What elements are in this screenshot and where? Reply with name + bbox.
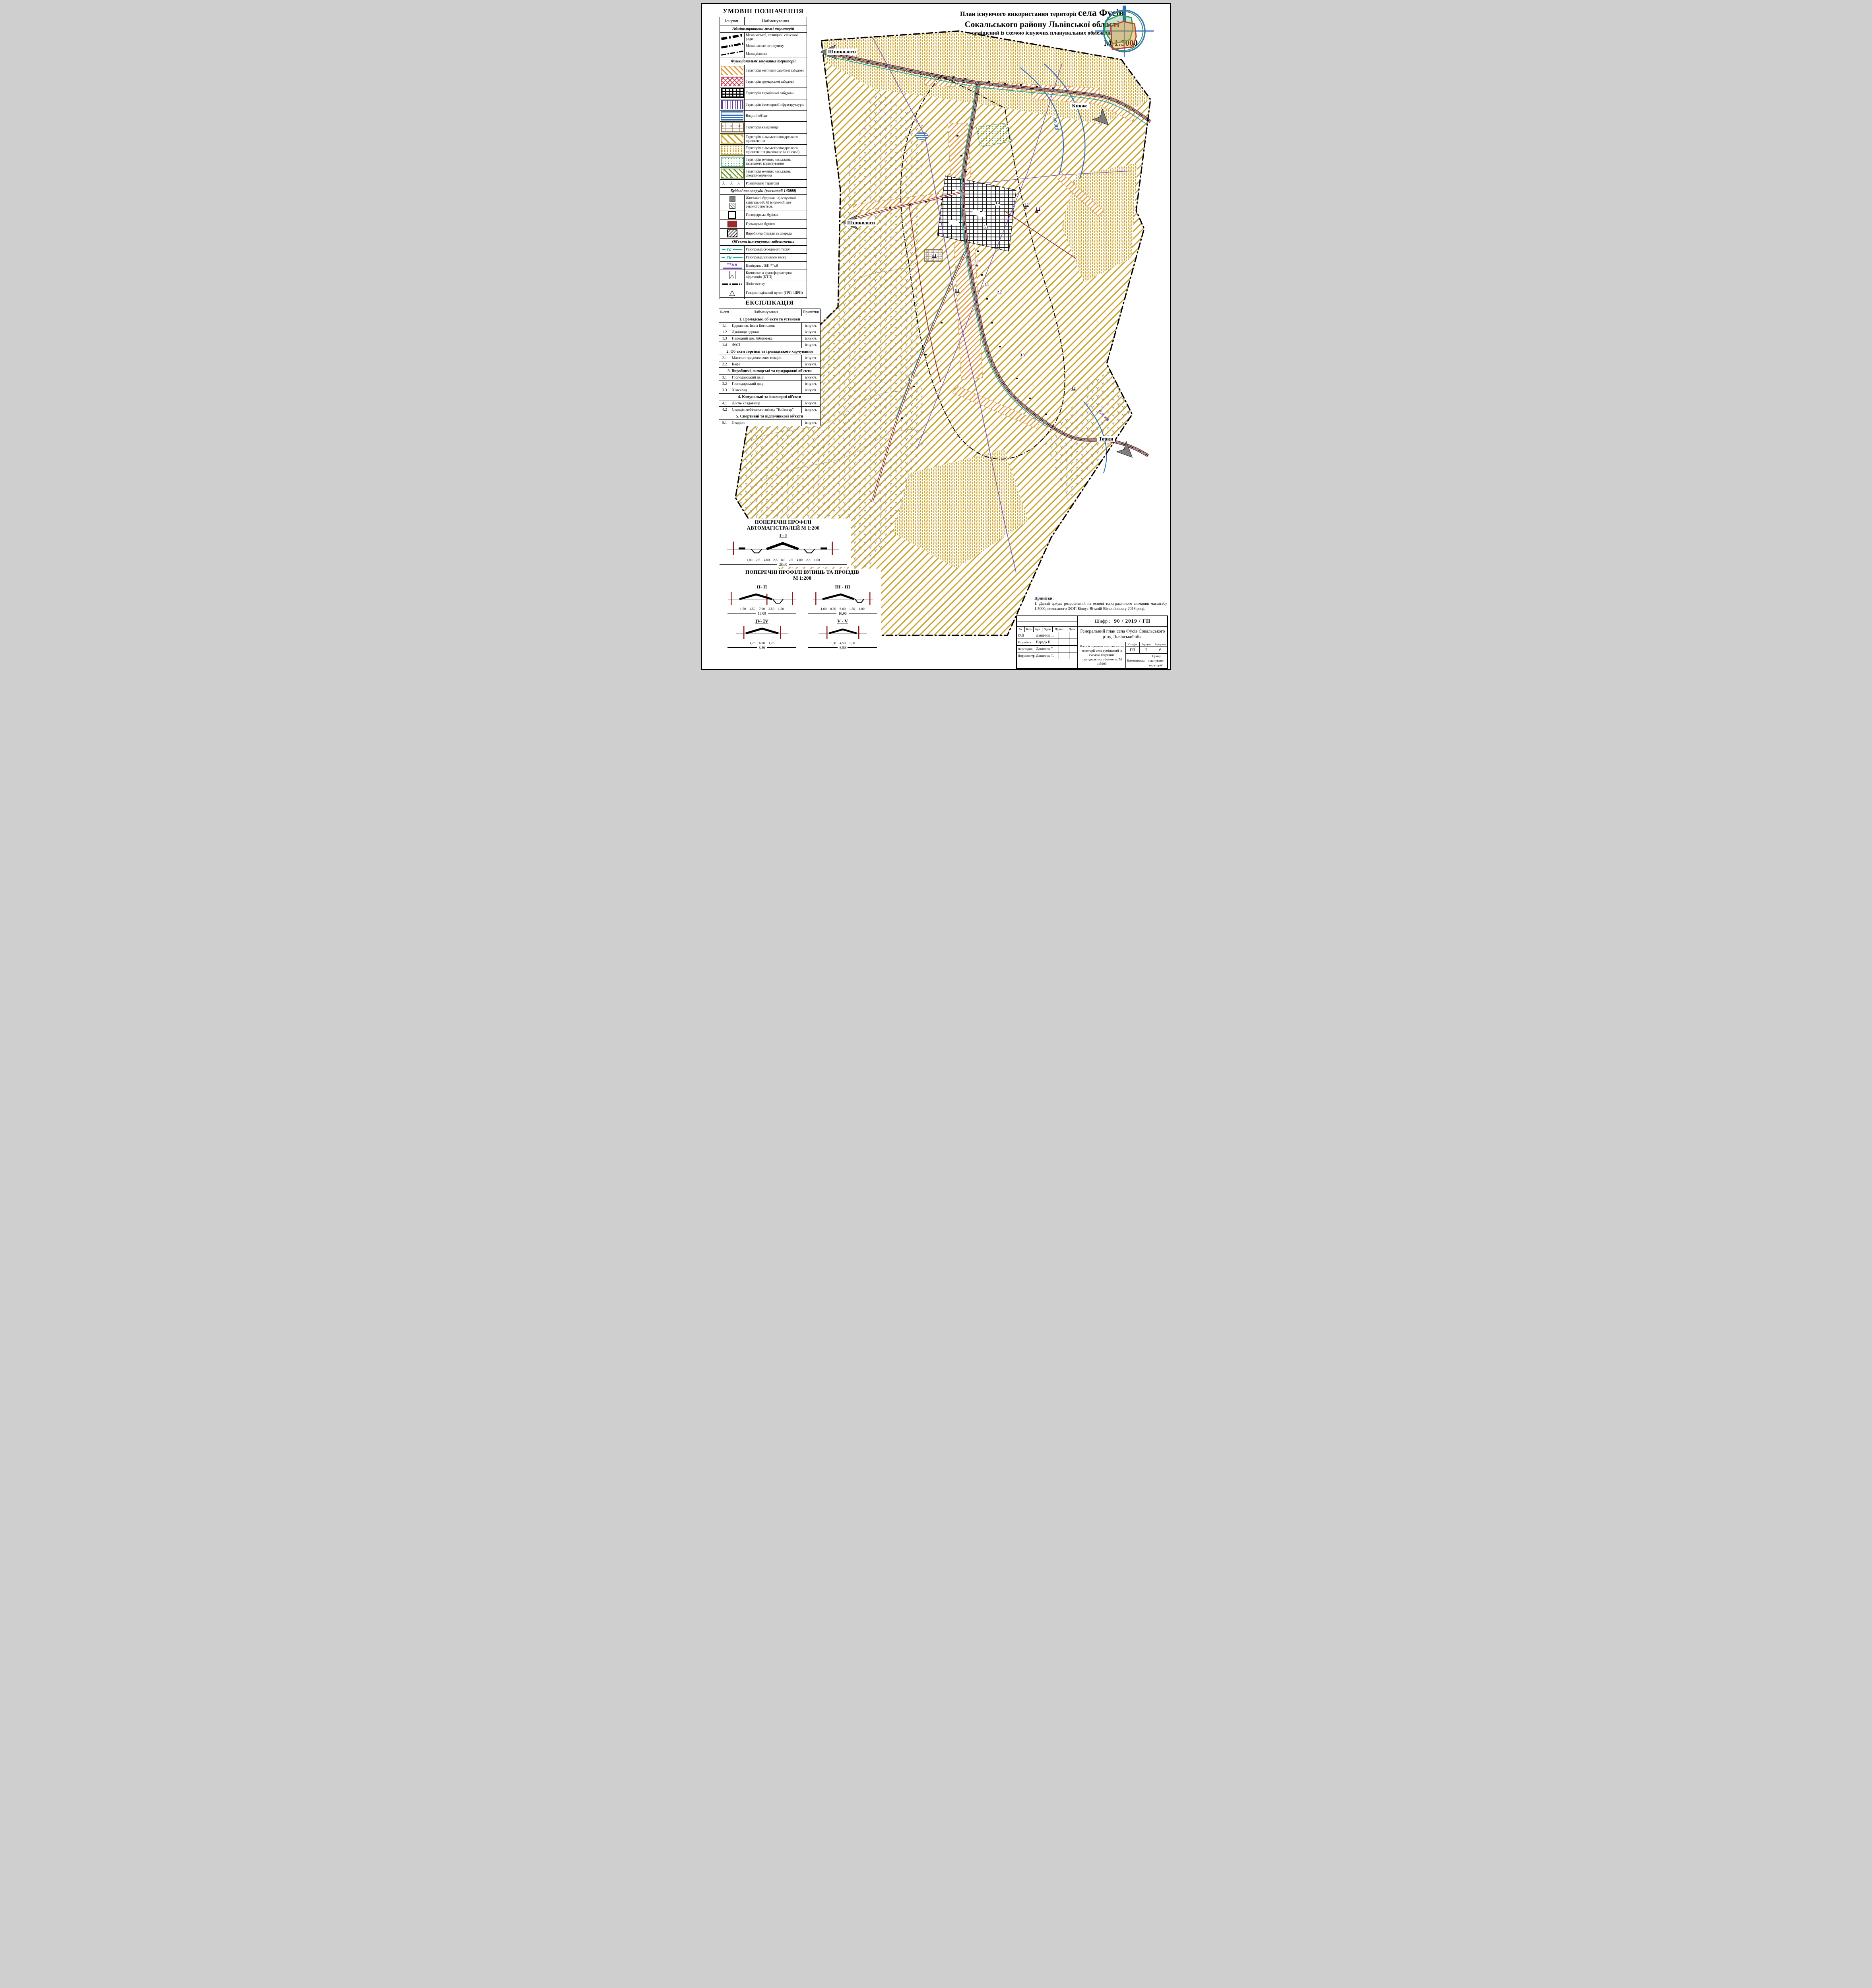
legend-row: Територія сільськогосподарського признач… <box>720 133 807 144</box>
explication-row-num: 5.1 <box>719 420 730 426</box>
legend-symbol <box>721 169 744 179</box>
profile-II-II: II- II 1,502,507,002,501,50 15,00 <box>724 583 799 615</box>
legend-symbol <box>721 100 743 109</box>
signature-date <box>1069 632 1077 639</box>
signature-date <box>1069 646 1077 652</box>
dimension-value: 4,00 <box>797 558 803 562</box>
legend-section-title: Адміністративні межі територій <box>721 27 806 31</box>
signature-rows: ГАП Данилюк Т. Розробив Парада Н. Пере <box>1017 632 1077 659</box>
legend-symbol-cell <box>720 270 745 280</box>
dimension-value: 6,00 <box>759 641 765 645</box>
legend-item-label: Повітряна ЛЕП **кВ <box>745 263 807 268</box>
legend-symbol: **кв <box>723 262 742 269</box>
cipher-row: Шифр : 90 / 2019 / ГП <box>1078 616 1167 627</box>
explication-row-note: існуюч. <box>802 356 820 360</box>
explication-row-note: існуюч. <box>802 382 820 386</box>
legend-symbol <box>721 88 744 98</box>
legend-symbol-cell <box>720 220 745 228</box>
explication-row: 2.1 Магазин продовольчих товарів існуюч. <box>719 355 820 361</box>
street-profiles-panel: ПОПЕРЕЧНІ ПРОФІЛІ ВУЛИЦЬ ТА ПРОЇЗДІВМ 1:… <box>724 569 881 650</box>
stage-values: ГП 2 6 <box>1126 647 1167 654</box>
dimension-value: 1,00 <box>821 607 826 611</box>
explication-row: 5. Спортивні та відпочинкові об'єкти <box>719 413 820 419</box>
explication-row: 1.2 Дзвіниця церкви існуюч. <box>719 329 820 335</box>
legend-symbol-cell: гн <box>720 254 745 261</box>
legend-symbol <box>721 134 743 144</box>
explication-row-num: 1.3 <box>719 336 730 342</box>
explication-row-name: Господарський двір <box>730 375 802 381</box>
explication-row-name: Господарський двір <box>730 381 802 387</box>
signature-date <box>1069 639 1077 645</box>
legend-item-label: Територія сільськогосподарського признач… <box>745 146 807 155</box>
signature-row: Перевірив Данилюк Т. <box>1017 646 1077 652</box>
legend-col-name: Найменування <box>745 17 807 25</box>
explication-row-note: існуюч. <box>802 421 820 425</box>
legend-item-label: Лінія зв'язку <box>745 282 807 286</box>
explication-row-num: 1.2 <box>719 329 730 335</box>
legend-symbol-cell <box>720 280 745 288</box>
explication-row: 5.1 Стадіон існуюч. <box>719 419 820 426</box>
signature-header: Зм.К-ть Арк.№док ПідписДата <box>1017 627 1077 632</box>
street-profiles-title: ПОПЕРЕЧНІ ПРОФІЛІ ВУЛИЦЬ ТА ПРОЇЗДІВМ 1:… <box>724 569 880 581</box>
legend-header: Існуюч. Найменування <box>720 17 807 25</box>
legend-symbol <box>722 196 743 209</box>
signature-role: Норм.контр. <box>1017 652 1035 659</box>
title-block: Зм.К-ть Арк.№док ПідписДата ГАП Данилюк … <box>1016 615 1168 669</box>
explication-row: 4. Комунальні та інженерні об'єкти <box>719 393 820 400</box>
signature-name: Парада Н. <box>1035 639 1059 645</box>
profile-name: IV- IV <box>724 618 799 624</box>
company-logo <box>1095 6 1154 57</box>
explication-row-note: існуюч. <box>802 388 820 392</box>
legend-item-label: Господарська будівля <box>745 212 807 217</box>
signature-name: Данилюк Т. <box>1035 652 1059 659</box>
dimension-value: 1,25 <box>768 641 774 645</box>
profile-name: II- II <box>724 584 799 590</box>
legend-row: Водний об'єкт Водний об'єкт <box>720 110 807 121</box>
legend-symbol <box>721 146 743 155</box>
cipher-label: Шифр : <box>1095 618 1110 624</box>
legend-item-label: Розпайовані території <box>745 181 807 186</box>
legend-row: Територія зелених насаджень загального к… <box>720 155 807 167</box>
legend-symbol-cell <box>720 210 745 219</box>
title-block-info: Шифр : 90 / 2019 / ГП Генеральний план с… <box>1078 616 1167 668</box>
explication-row: 3. Виробничі, складські та придорожні об… <box>719 367 820 374</box>
signature-role: ГАП <box>1017 632 1035 639</box>
legend-item-label: Межа населеного пункту <box>745 43 807 48</box>
explication-row-name: Магазин продовольчих товарів <box>730 355 802 361</box>
profile-total: 8,50 <box>727 646 796 650</box>
signature-row: Розробив Парада Н. <box>1017 639 1077 646</box>
explication-header: №п/п Найменування Примітки <box>719 309 820 316</box>
explication-row-name: 1. Громадські об'єкти та установи <box>739 317 800 322</box>
legend-row: Житловий будинок : а) існуючий капітальн… <box>720 194 807 210</box>
signature-row: Норм.контр. Данилюк Т. <box>1017 652 1077 659</box>
explication-row-num: 4.2 <box>719 407 730 413</box>
dimension-value: 2,5 <box>773 558 778 562</box>
signature-sign <box>1059 632 1069 639</box>
dimension-value: 2,5 <box>789 558 793 562</box>
explication-row: 1.3 Народний дім, бібліотека існуюч. <box>719 335 820 342</box>
profile-name: V - V <box>805 618 880 624</box>
legend-row: Газопровід низького тиску гн Газопровід … <box>720 253 807 261</box>
explication-row-num: 3.1 <box>719 375 730 381</box>
explication-row-name: ФАП <box>730 342 802 348</box>
legend-item-label: Газопровід низького тиску <box>745 255 807 260</box>
profile-total: 6,50 <box>808 646 877 650</box>
legend-symbol-cell <box>720 111 745 121</box>
explication-row-num: 3.2 <box>719 381 730 387</box>
dimension-value: 1,50 <box>740 607 746 611</box>
legend-item-label: Межа ділянки <box>745 51 807 56</box>
explication-col-num: №п/п <box>719 309 730 316</box>
profile-drawing <box>731 625 793 641</box>
legend-col-existing: Існуюч. <box>720 17 745 25</box>
explication-row-note: існуюч. <box>802 376 820 380</box>
legend-title: УМОВНІ ПОЗНАЧЕННЯ <box>720 8 807 15</box>
explication-row-name: 3. Виробничі, складські та придорожні об… <box>727 369 811 373</box>
explication-row-name: Діюче кладовище <box>730 400 802 406</box>
legend-symbol-cell <box>720 288 745 297</box>
signature-role: Розробив <box>1017 639 1035 645</box>
highway-profiles-panel: ПОПЕРЕЧНІ ПРОФІЛІАВТОМАГІСТРАЛЕЙ М 1:200… <box>716 518 851 567</box>
legend-item-label: Межа міської, селищної, сільської ради <box>745 33 807 42</box>
legend-item-label: Водний об'єкт <box>745 113 807 118</box>
explication-row: 1.4 ФАП існуюч. <box>719 342 820 348</box>
dimension-value: 1,50 <box>778 607 784 611</box>
legend-row: Газопровід середнього тиску гс Газопрові… <box>720 245 807 253</box>
legend-symbol <box>729 289 735 297</box>
legend-section-title: Будівлі та споруди (масштаб 1:5000) <box>721 189 806 193</box>
cipher-value: 90 / 2019 / ГП <box>1114 618 1151 624</box>
explication-rows: 1. Громадські об'єкти та установи 1.1 Це… <box>719 316 820 426</box>
legend-symbol-cell <box>720 76 745 87</box>
legend-symbol <box>722 181 742 186</box>
dimension-value: 1,00 <box>859 607 865 611</box>
explication-title: ЕКСПЛІКАЦІЯ <box>719 300 821 307</box>
explication-row-name: Церква св. Івана Богослова <box>730 323 802 329</box>
dimension-value: 0,50 <box>830 607 836 611</box>
dimension-value: 1,00 <box>830 641 836 645</box>
legend-item-label: Територія житлової садибної забудови <box>745 68 807 73</box>
legend-symbol <box>721 77 743 86</box>
legend-row: Адміністративні межі територій Адміністр… <box>720 25 807 32</box>
legend-symbol <box>721 51 743 56</box>
explication-row-num: 3.3 <box>719 387 730 393</box>
signature-name: Данилюк Т. <box>1035 646 1059 652</box>
profile-total: 15,00 <box>727 612 796 615</box>
explication-row-note: існуюч. <box>802 402 820 406</box>
explication-row-name: 2. Об'єкти торгівлі та громадського харч… <box>726 349 813 354</box>
explication-row: 4.1 Діюче кладовище існуюч. <box>719 400 820 406</box>
explication-row-note: існуюч. <box>802 363 820 367</box>
legend-item-label: Територія виробничої забудови <box>745 91 807 95</box>
legend-symbol-cell <box>720 65 745 76</box>
legend-row: Господарська будівля Господарська будівл… <box>720 210 807 219</box>
profile-drawing <box>724 539 843 557</box>
explication-col-note: Примітки <box>802 309 820 316</box>
legend-row: Межа ділянки Межа ділянки <box>720 50 807 58</box>
profile-total: 10,00 <box>808 612 877 615</box>
explication-row: 1. Громадські об'єкти та установи <box>719 316 820 322</box>
legend-row: Об'єкти інженерного забезпечення Об'єкти… <box>720 238 807 245</box>
title-block-signatures: Зм.К-ть Арк.№док ПідписДата ГАП Данилюк … <box>1017 616 1078 668</box>
profile-name: I - I <box>716 533 850 539</box>
legend-row: Територія громадської забудови Територія… <box>720 76 807 87</box>
legend-symbol-cell: **кв <box>720 262 745 270</box>
legend-symbol <box>727 229 737 237</box>
legend-symbol-cell <box>720 156 745 167</box>
legend-row: Межа населеного пункту Межа населеного п… <box>720 42 807 50</box>
explication-row: 2.2 Кафе існуюч. <box>719 361 820 367</box>
dimension-value: 4,00 <box>764 558 770 562</box>
explication-row: 3.1 Господарський двір існуюч. <box>719 374 820 381</box>
explication-row-num: 1.4 <box>719 342 730 348</box>
legend-item-label: Комплектна трансформаторна підстанція (К… <box>745 270 807 280</box>
legend-row: Територія виробничої забудови Територія … <box>720 87 807 99</box>
sheets-total: 6 <box>1153 647 1167 654</box>
explication-row-name: Стадіон <box>730 420 802 426</box>
signature-sign <box>1059 646 1069 652</box>
explication-row-name: 4. Комунальні та інженерні об'єкти <box>738 395 801 399</box>
legend-item-label: Житловий будинок : а) існуючий капітальн… <box>745 196 807 209</box>
sheet-number: 2 <box>1140 647 1154 654</box>
plan-sheet: Шпиколоси Шпиколоси Княже Торки 1.1 1.2 … <box>701 3 1171 670</box>
legend-symbol-cell <box>720 145 745 155</box>
profile-V-V: V - V 1,004,501,00 6,50 <box>805 617 880 650</box>
legend-symbol-cell <box>720 87 745 99</box>
explication-row-num: 2.1 <box>719 355 730 361</box>
legend-row: Територія сільськогосподарського признач… <box>720 144 807 155</box>
explication-row: 1.1 Церква св. Івана Богослова існуюч. <box>719 322 820 329</box>
legend-symbol <box>721 111 743 120</box>
legend-symbol-cell <box>720 33 745 42</box>
legend-symbol: гн <box>722 255 742 260</box>
legend-symbol <box>727 221 737 227</box>
legend-row: Територія житлової садибної забудови Тер… <box>720 65 807 76</box>
legend-symbol-cell: гс <box>720 246 745 253</box>
dimension-value: 1,00 <box>814 558 820 562</box>
profile-total: 28,00 <box>720 563 847 567</box>
explication-row-num: 4.1 <box>719 400 730 406</box>
explication-row: 4.2 Станція мобільного зв'язку "Київстар… <box>719 406 820 413</box>
project-name: Генеральний план села Фусів Сокальського… <box>1078 627 1167 642</box>
profile-dimensions: 1,002,54,002,58,02,54,002,51,00 <box>716 558 850 562</box>
profile-IV-IV: IV- IV 1,256,001,25 8,50 <box>724 617 799 650</box>
explication-row-num: 2.2 <box>719 361 730 367</box>
stage-header: Стадія Аркуш Аркушів <box>1126 642 1167 647</box>
legend-row: Територія зелених насаджень спецпризначе… <box>720 167 807 179</box>
legend-symbol <box>721 122 744 132</box>
explication-row: 2. Об'єкти торгівлі та громадського харч… <box>719 348 820 355</box>
notes-title: Примітки : <box>1034 596 1167 601</box>
legend-item-label: Територія сільськогосподарського признач… <box>745 134 807 144</box>
legend-symbol-cell <box>720 99 745 110</box>
explication-row-name: Народний дім, бібліотека <box>730 336 802 342</box>
legend-row: Розпайовані території Розпайовані терито… <box>720 179 807 187</box>
dimension-value: 6,00 <box>840 607 846 611</box>
legend-symbol-cell <box>720 122 745 133</box>
dimension-value: 2,5 <box>756 558 760 562</box>
legend-symbol: гс <box>722 247 742 252</box>
signature-name: Данилюк Т. <box>1035 632 1059 639</box>
signature-date <box>1069 652 1077 659</box>
legend-symbol <box>728 211 736 219</box>
dimension-value: 2,50 <box>768 607 774 611</box>
legend-row: Лінія зв'язку Лінія зв'язку <box>720 280 807 288</box>
explication-row-name: Станція мобільного зв'язку "Київстар" <box>730 407 802 413</box>
legend-symbol <box>721 157 744 167</box>
legend-section-title: Функціональне зонування території <box>721 59 806 64</box>
profile-drawing <box>812 590 874 606</box>
explication-row-note: існуюч. <box>802 408 820 412</box>
legend-row: Функціональне зонування території Функці… <box>720 58 807 65</box>
dimension-value: 1,25 <box>749 641 755 645</box>
explication-row: 3.2 Господарський двір існуюч. <box>719 381 820 387</box>
legend-symbol-cell <box>720 229 745 238</box>
highway-profiles-title: ПОПЕРЕЧНІ ПРОФІЛІАВТОМАГІСТРАЛЕЙ М 1:200 <box>716 519 850 531</box>
signature-sign <box>1059 639 1069 645</box>
legend-row: Межа міської, селищної, сільської ради М… <box>720 32 807 42</box>
legend-section-title: Об'єкти інженерного забезпечення <box>721 240 806 244</box>
dimension-value: 2,5 <box>806 558 811 562</box>
explication-col-name: Найменування <box>730 309 802 316</box>
legend-symbol-cell <box>720 168 745 179</box>
dimension-value: 1,00 <box>747 558 753 562</box>
notes-block: Примітки : 1. Даний аркуш розроблений на… <box>1034 596 1167 612</box>
legend-item-label: Територія кладовища <box>745 125 807 130</box>
legend-row: Територія кладовища Територія кладовища <box>720 121 807 133</box>
legend-item-label: Територія інженерної інфраструктури <box>745 102 807 107</box>
profile-drawing <box>812 625 874 641</box>
profile-III-III: III - III 1,000,506,001,501,00 10,00 <box>805 583 880 615</box>
explication-row-name: Хімсклад <box>730 387 802 393</box>
legend-symbol <box>721 43 743 49</box>
legend-item-label: Територія громадської забудови <box>745 79 807 84</box>
legend-symbol-cell <box>720 42 745 50</box>
signature-row: ГАП Данилюк Т. <box>1017 632 1077 639</box>
profile-drawing <box>727 590 797 606</box>
explication-row-name: Кафе <box>730 361 802 367</box>
explication-row-note: існуюч. <box>802 343 820 347</box>
legend-symbol <box>721 34 743 40</box>
legend-symbol-cell <box>720 180 745 187</box>
explication-row: 3.3 Хімсклад існуюч. <box>719 387 820 393</box>
legend-item-label: Громадська будівля <box>745 221 807 226</box>
explication-row-name: Дзвіниця церкви <box>730 329 802 335</box>
legend-row: Повітряна ЛЕП **кВ **кв Повітряна ЛЕП **… <box>720 261 807 270</box>
profile-I-I: I - I 1,002,54,002,58,02,54,002,51,00 28… <box>716 533 850 567</box>
legend-item-label: Територія зелених насаджень спецпризначе… <box>745 169 807 178</box>
explication-row-num: 1.1 <box>719 323 730 329</box>
legend-row: Газорозподільний пункт (ГРП, ШРП) Газоро… <box>720 288 807 297</box>
legend-row: Громадська будівля Громадська будівля <box>720 219 807 228</box>
legend-symbol <box>722 283 742 285</box>
legend-row: Територія інженерної інфраструктури Тери… <box>720 99 807 110</box>
notes-text: 1. Даний аркуш розроблений на основі топ… <box>1034 602 1167 612</box>
dimension-value: 1,00 <box>849 641 855 645</box>
sheet-title: План існуючого використання території се… <box>1078 642 1126 668</box>
dimension-value: 4,50 <box>840 641 846 645</box>
profile-name: III - III <box>805 584 880 590</box>
dimension-value: 2,50 <box>749 607 755 611</box>
explication-row-name: 5. Спортивні та відпочинкові об'єкти <box>736 414 803 419</box>
explication-panel: ЕКСПЛІКАЦІЯ №п/п Найменування Примітки 1… <box>719 299 821 426</box>
legend-symbol-cell <box>720 134 745 144</box>
executor: Виконавець: "Центр плануваня території" <box>1126 654 1167 668</box>
legend-row: Виробнича будівля та споруда Виробнича б… <box>720 228 807 238</box>
legend-item-label: Територія зелених насаджень загального к… <box>745 157 807 166</box>
explication-row-note: існуюч. <box>802 337 820 341</box>
legend-symbol <box>729 271 735 279</box>
dimension-value: 1,50 <box>849 607 855 611</box>
legend-item-label: Газорозподільний пункт (ГРП, ШРП) <box>745 290 807 295</box>
signature-role: Перевірив <box>1017 646 1035 652</box>
legend-row: Комплектна трансформаторна підстанція (К… <box>720 270 807 280</box>
stage-value: ГП <box>1126 647 1140 654</box>
explication-row-note: існуюч. <box>802 330 820 334</box>
legend-symbol-cell <box>720 195 745 210</box>
signature-sign <box>1059 652 1069 659</box>
legend-row: Будівлі та споруди (масштаб 1:5000) Буді… <box>720 187 807 194</box>
dimension-value: 8,0 <box>781 558 786 562</box>
legend-item-label: Виробнича будівля та споруда <box>745 231 807 236</box>
explication-row-note: існуюч. <box>802 324 820 328</box>
dimension-value: 7,00 <box>759 607 765 611</box>
legend-symbol-cell <box>720 50 745 58</box>
legend-item-label: Газопровід середнього тиску <box>745 247 807 252</box>
legend-symbol <box>721 66 743 75</box>
